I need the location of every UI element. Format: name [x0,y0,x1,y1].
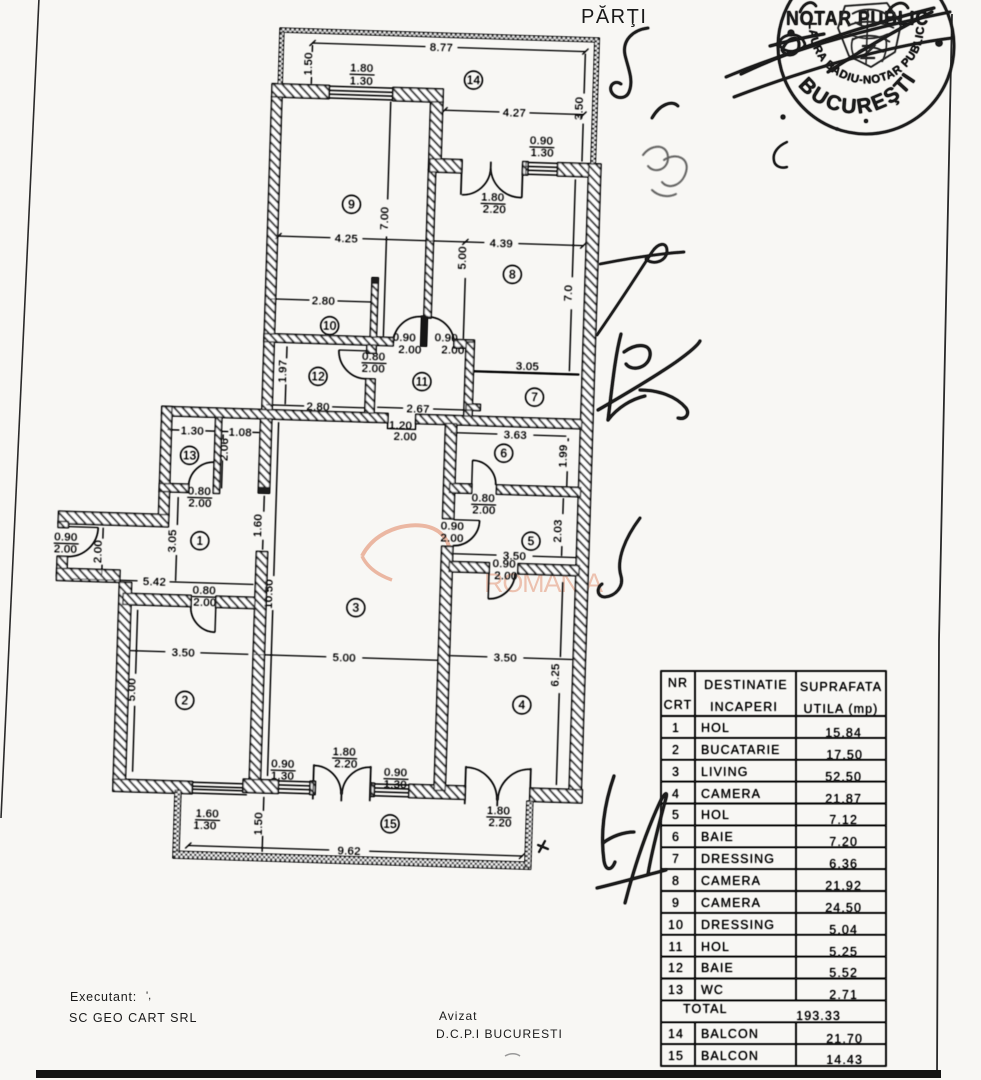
svg-text:1.80: 1.80 [333,746,357,759]
svg-text:DRESSING: DRESSING [701,918,775,932]
svg-text:6.25: 6.25 [549,663,562,687]
svg-text:0.90: 0.90 [271,758,295,771]
svg-text:0.80: 0.80 [188,485,212,498]
svg-text:4: 4 [672,787,680,801]
svg-text:10.50: 10.50 [263,579,276,609]
svg-text:2.00: 2.00 [92,540,105,564]
svg-text:3.05: 3.05 [166,529,179,553]
svg-text:2.00: 2.00 [362,363,386,376]
svg-text:BAIE: BAIE [701,961,734,975]
svg-text:6.36: 6.36 [829,857,858,871]
svg-text:2.00: 2.00 [440,532,464,545]
svg-text:4: 4 [518,698,525,712]
svg-text:2.80: 2.80 [306,401,330,414]
svg-text:2.06: 2.06 [218,438,231,462]
svg-text:BALCON: BALCON [701,1027,759,1041]
svg-text:7.20: 7.20 [829,835,858,849]
svg-text:BUCATARIE: BUCATARIE [701,743,781,757]
svg-text:DRESSING: DRESSING [701,852,775,866]
svg-text:0.90: 0.90 [384,767,408,780]
svg-text:5.52: 5.52 [829,966,858,980]
svg-text:SC GEO CART SRL: SC GEO CART SRL [69,1011,197,1025]
svg-text:11: 11 [416,374,429,388]
svg-text:1.50: 1.50 [253,812,266,836]
svg-text:NR: NR [668,676,688,690]
svg-text:CAMERA: CAMERA [701,896,761,910]
svg-text:2.00: 2.00 [193,597,217,610]
svg-text:0.90: 0.90 [54,531,78,544]
svg-text:WC: WC [701,983,724,997]
svg-text:1: 1 [196,534,203,548]
svg-text:7: 7 [672,852,680,866]
svg-text:BAIE: BAIE [701,830,734,844]
svg-text:HOL: HOL [701,940,730,954]
svg-text:5: 5 [672,808,680,822]
svg-text:12: 12 [311,369,325,383]
svg-text:1.30: 1.30 [350,75,374,88]
svg-text:5.42: 5.42 [143,576,167,589]
svg-text:1.80: 1.80 [350,62,374,75]
svg-text:1: 1 [672,721,680,735]
svg-text:TOTAL: TOTAL [683,1002,728,1016]
svg-text:Avizat: Avizat [439,1009,477,1023]
svg-text:2.00: 2.00 [441,344,465,357]
svg-text:8: 8 [509,267,516,281]
svg-text:2: 2 [672,743,680,757]
svg-text:1.80: 1.80 [481,191,505,204]
svg-text:2.00: 2.00 [188,497,212,510]
svg-text:15: 15 [383,817,397,831]
svg-text:8: 8 [672,874,680,888]
svg-text:SUPRAFATA: SUPRAFATA [800,680,882,694]
svg-text:0.80: 0.80 [472,492,496,505]
svg-text:17.50: 17.50 [826,748,863,762]
svg-text:1.80: 1.80 [487,805,511,818]
svg-text:5.04: 5.04 [829,923,858,937]
svg-text:3.50: 3.50 [494,652,518,665]
svg-text:13: 13 [183,448,197,462]
svg-text:14.43: 14.43 [826,1053,863,1067]
svg-text:6: 6 [672,830,680,844]
svg-text:2.00: 2.00 [393,431,417,444]
svg-text:5: 5 [527,534,534,548]
svg-text:7.0: 7.0 [563,285,576,302]
svg-text:CAMERA: CAMERA [701,874,761,888]
svg-text:Executant:: Executant: [70,990,137,1004]
svg-text:0.80: 0.80 [193,585,217,598]
svg-text:CRT: CRT [664,698,693,712]
svg-text:0.90: 0.90 [393,332,417,345]
svg-text:10: 10 [668,918,684,932]
svg-text:3.05: 3.05 [516,361,540,374]
svg-text:21.70: 21.70 [826,1032,863,1046]
svg-text:9.62: 9.62 [337,845,361,858]
svg-text:21.92: 21.92 [825,879,862,893]
svg-text:3.63: 3.63 [504,429,528,442]
svg-text:HOL: HOL [701,721,730,735]
svg-text:BALCON: BALCON [701,1049,759,1063]
svg-text:1.08: 1.08 [228,427,252,440]
svg-text:2: 2 [181,693,188,707]
svg-text:INCAPERI: INCAPERI [710,700,778,714]
svg-text:2.20: 2.20 [483,203,507,216]
svg-text:2.00: 2.00 [494,570,518,583]
svg-text:2.03: 2.03 [552,519,565,543]
svg-text:1.50: 1.50 [303,52,316,76]
svg-text:1.60: 1.60 [195,808,219,821]
svg-text:0.90: 0.90 [435,332,459,345]
svg-text:HOL: HOL [701,808,730,822]
svg-text:2.20: 2.20 [488,817,512,830]
svg-text:10: 10 [323,319,337,333]
svg-text:1.97: 1.97 [277,359,290,383]
svg-text:2.00: 2.00 [398,344,422,357]
svg-text:3: 3 [672,765,680,779]
svg-text:15.84: 15.84 [825,726,862,740]
svg-text:PĂRŢI: PĂRŢI [581,5,647,28]
svg-text:13: 13 [668,983,684,997]
svg-text:2.71: 2.71 [829,988,858,1002]
svg-text:5.00: 5.00 [126,678,139,702]
svg-text:1.30: 1.30 [530,147,554,160]
svg-text:UTILA (mp): UTILA (mp) [804,702,879,716]
svg-text:9: 9 [348,197,355,211]
svg-text:2.00: 2.00 [54,543,78,556]
svg-text:2.67: 2.67 [406,403,430,416]
svg-text:5.00: 5.00 [457,246,470,270]
svg-text:0.90: 0.90 [492,558,516,571]
svg-text:8.77: 8.77 [430,42,454,55]
svg-text:CAMERA: CAMERA [701,787,761,801]
svg-text:2.00: 2.00 [472,504,496,517]
svg-text:3: 3 [352,601,359,615]
svg-text:9: 9 [672,896,680,910]
svg-text:1.30: 1.30 [271,770,295,783]
svg-text:12: 12 [668,961,684,975]
svg-text:6: 6 [500,446,507,460]
svg-text:52.50: 52.50 [825,770,862,784]
svg-text:4.39: 4.39 [490,238,514,251]
svg-text:1.30: 1.30 [193,820,217,833]
svg-text:1.30: 1.30 [384,779,408,792]
svg-text:1.60: 1.60 [252,514,265,538]
svg-text:24.50: 24.50 [825,901,862,915]
svg-text:0.90: 0.90 [441,520,465,533]
svg-text:5.00: 5.00 [332,652,356,665]
svg-text:LIVING: LIVING [701,765,749,779]
svg-text:14: 14 [467,73,481,87]
svg-text:2.80: 2.80 [312,295,336,308]
svg-text:193.33: 193.33 [796,1009,841,1023]
svg-text:3.50: 3.50 [573,97,586,121]
svg-text:15: 15 [668,1049,684,1063]
svg-text:',: ', [146,990,151,1002]
svg-text:1.30: 1.30 [181,425,205,438]
svg-text:21.87: 21.87 [825,792,862,806]
svg-text:1.99: 1.99 [557,444,570,468]
svg-text:0.90: 0.90 [530,135,554,148]
svg-text:7.00: 7.00 [379,207,392,231]
svg-text:2.20: 2.20 [334,758,358,771]
svg-text:0.80: 0.80 [362,351,386,364]
svg-text:3.50: 3.50 [172,647,196,660]
svg-text:11: 11 [668,940,683,954]
svg-text:4.25: 4.25 [335,233,359,246]
svg-text:DESTINATIE: DESTINATIE [704,678,788,692]
svg-text:5.25: 5.25 [829,945,858,959]
svg-text:14: 14 [668,1027,684,1041]
svg-text:4.27: 4.27 [503,107,527,120]
svg-text:D.C.P.I BUCURESTI: D.C.P.I BUCURESTI [436,1027,563,1041]
svg-text:7: 7 [531,390,538,404]
svg-text:7.12: 7.12 [829,813,858,827]
